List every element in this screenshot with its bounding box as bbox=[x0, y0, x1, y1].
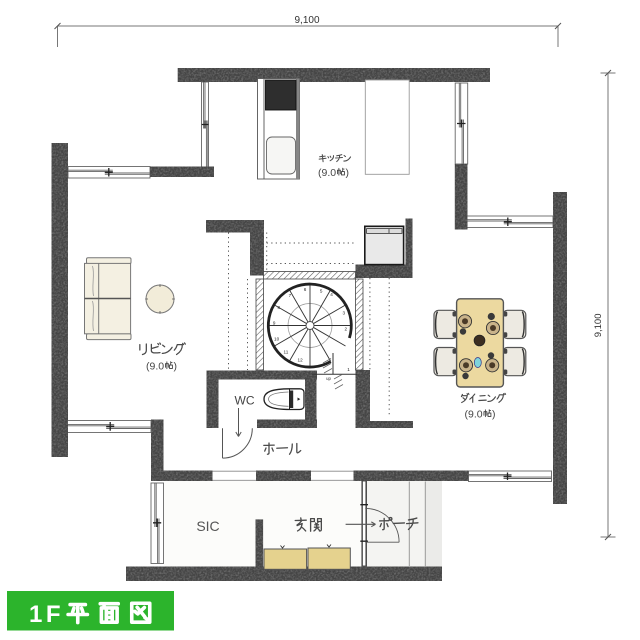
svg-text:): ) bbox=[174, 361, 178, 373]
svg-text:11: 11 bbox=[284, 350, 289, 355]
svg-text:WC: WC bbox=[235, 394, 255, 408]
svg-text:10: 10 bbox=[274, 336, 280, 341]
svg-text:(9.0: (9.0 bbox=[146, 361, 164, 373]
svg-text:2: 2 bbox=[345, 327, 348, 332]
svg-text:3: 3 bbox=[343, 311, 346, 316]
svg-text:4: 4 bbox=[330, 292, 333, 297]
svg-text:7: 7 bbox=[289, 293, 292, 298]
svg-text:): ) bbox=[492, 409, 496, 421]
svg-text:SIC: SIC bbox=[196, 518, 219, 534]
svg-text:): ) bbox=[346, 167, 350, 179]
svg-text:(9.0: (9.0 bbox=[465, 409, 483, 421]
svg-text:8: 8 bbox=[278, 305, 281, 310]
svg-text:6: 6 bbox=[304, 287, 307, 292]
svg-text:5: 5 bbox=[320, 289, 323, 294]
svg-text:9: 9 bbox=[273, 320, 276, 325]
svg-text:up: up bbox=[326, 376, 331, 381]
svg-text:9,100: 9,100 bbox=[593, 314, 604, 338]
svg-text:1: 1 bbox=[347, 367, 350, 372]
svg-text:12: 12 bbox=[298, 357, 304, 362]
svg-text:(9.0: (9.0 bbox=[318, 167, 336, 179]
svg-text:9,100: 9,100 bbox=[294, 15, 319, 26]
svg-text:1F: 1F bbox=[29, 601, 64, 628]
